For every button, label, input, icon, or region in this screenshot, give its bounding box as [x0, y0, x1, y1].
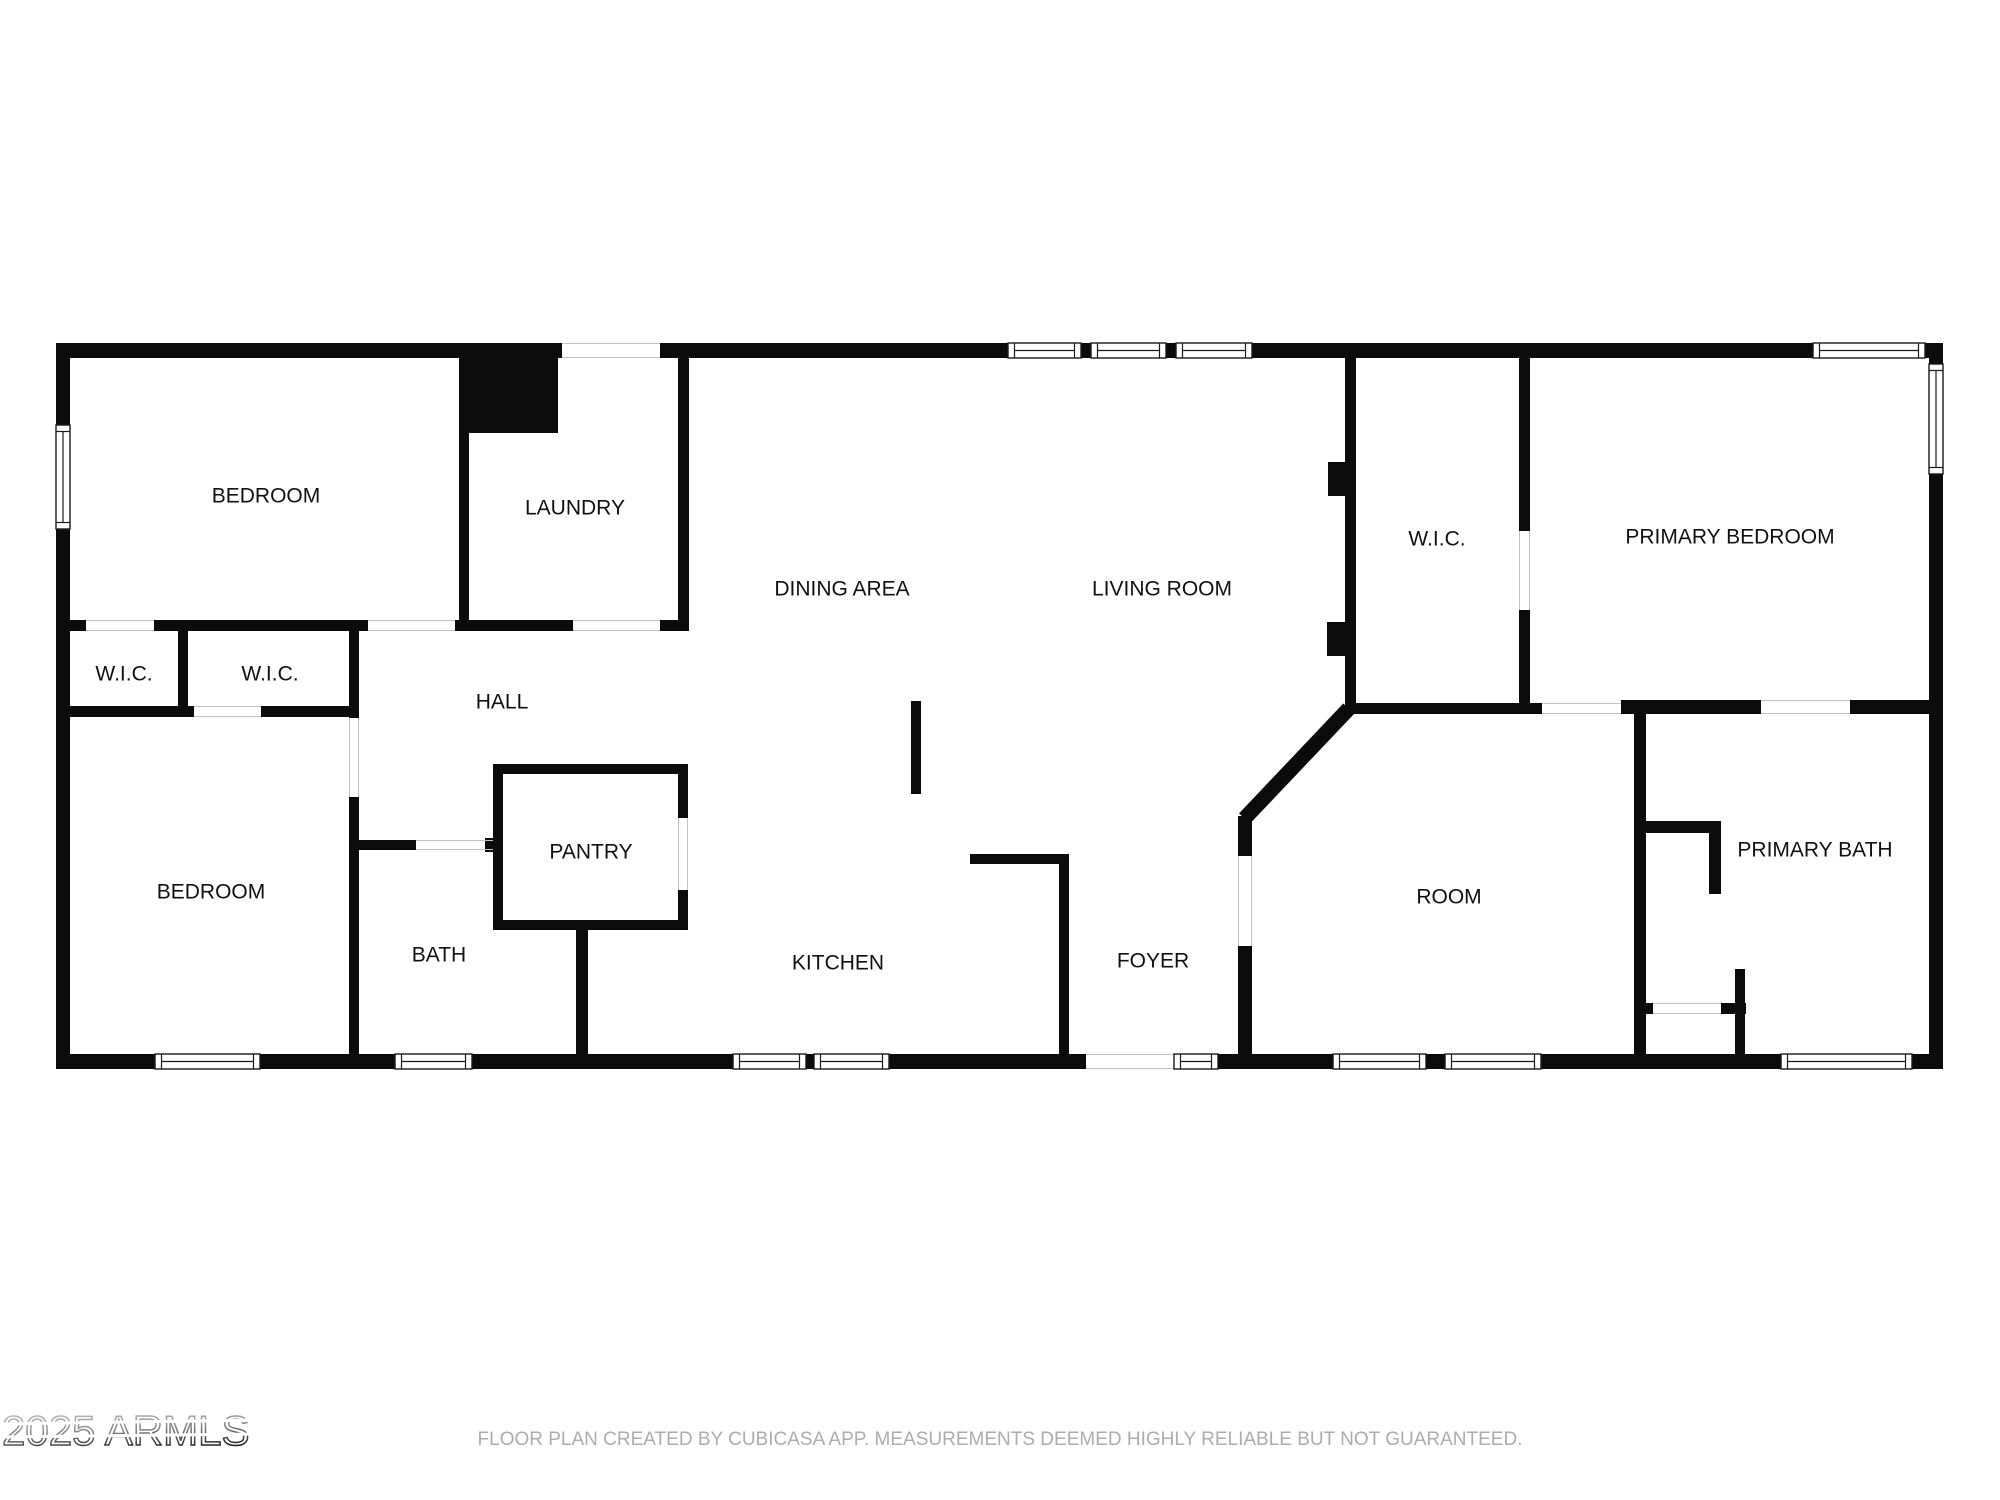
svg-text:BATH: BATH — [412, 944, 466, 967]
svg-text:BEDROOM: BEDROOM — [157, 881, 266, 904]
svg-text:W.I.C.: W.I.C. — [241, 663, 298, 686]
svg-text:W.I.C.: W.I.C. — [95, 663, 152, 686]
svg-text:HALL: HALL — [476, 691, 529, 714]
svg-text:ROOM: ROOM — [1416, 886, 1481, 909]
svg-text:LIVING ROOM: LIVING ROOM — [1092, 578, 1232, 601]
svg-text:KITCHEN: KITCHEN — [792, 952, 884, 975]
svg-text:PRIMARY BEDROOM: PRIMARY BEDROOM — [1625, 526, 1834, 549]
svg-text:FOYER: FOYER — [1117, 950, 1189, 973]
svg-text:PANTRY: PANTRY — [549, 841, 632, 864]
svg-text:2025 ARMLS: 2025 ARMLS — [2, 1407, 250, 1454]
svg-text:LAUNDRY: LAUNDRY — [525, 497, 625, 520]
svg-text:W.I.C.: W.I.C. — [1408, 528, 1465, 551]
svg-text:BEDROOM: BEDROOM — [212, 485, 321, 508]
svg-text:PRIMARY BATH: PRIMARY BATH — [1737, 839, 1892, 862]
svg-text:DINING AREA: DINING AREA — [774, 578, 909, 601]
svg-text:FLOOR PLAN CREATED BY CUBICASA: FLOOR PLAN CREATED BY CUBICASA APP. MEAS… — [478, 1429, 1523, 1450]
